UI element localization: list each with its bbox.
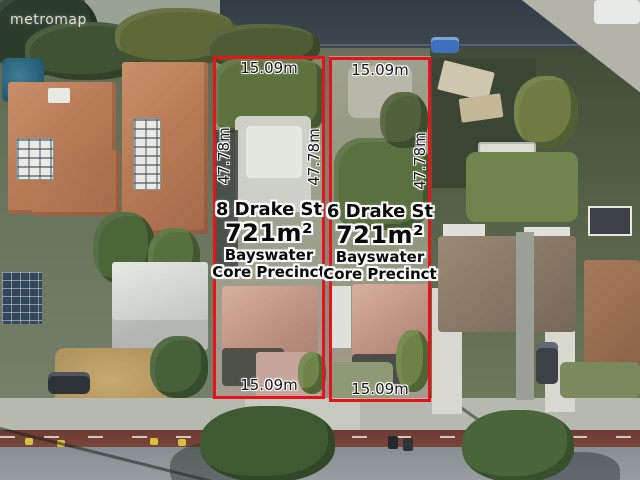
roof-vent-white xyxy=(48,88,70,103)
bin-1 xyxy=(388,436,398,449)
solar-panels-2 xyxy=(133,118,161,190)
bin-2 xyxy=(403,438,413,451)
lot6-frontage-top-label: 15.09m xyxy=(329,61,431,79)
car-gray-right xyxy=(536,342,558,384)
solar-dark-right xyxy=(588,206,632,236)
driveway-vertical-right xyxy=(516,232,534,400)
lot6-address: 6 Drake St xyxy=(327,201,433,222)
lot8-info: 8 Drake St 721m² Bayswater Core Precinct xyxy=(210,199,328,281)
solar-panels-1 xyxy=(16,138,54,180)
house-roof-edge-right xyxy=(584,260,640,366)
aerial-map: 15.09m 47.78m 47.78m 8 Drake St 721m² Ba… xyxy=(0,0,640,480)
road-marker-yellow-1 xyxy=(25,438,33,445)
lot8-area: 721m² xyxy=(225,220,313,247)
lot8-address: 8 Drake St xyxy=(216,199,322,220)
car-blue xyxy=(431,37,459,53)
car-dark xyxy=(48,372,90,394)
house-roof-white xyxy=(112,262,208,350)
road-marker-yellow-3 xyxy=(150,438,158,445)
solar-panels-blue xyxy=(2,272,42,324)
lot8-depth-right-label: 47.78m xyxy=(305,117,323,197)
lot8-depth-left-label: 47.78m xyxy=(215,116,233,196)
lot6-zone-line2: Core Precinct xyxy=(323,266,436,283)
lot8-zone-line1: Bayswater xyxy=(225,247,314,264)
lot8-zone-line2: Core Precinct xyxy=(212,264,325,281)
lawn-right xyxy=(466,152,578,222)
metromap-watermark: metromap xyxy=(10,12,87,28)
house-roof-brown-right xyxy=(438,236,576,332)
lot8-frontage-top-label: 15.09m xyxy=(213,59,325,77)
lot6-depth-right-label: 47.78m xyxy=(411,121,429,201)
road-marker-yellow-4 xyxy=(178,439,186,446)
tree-olive-right xyxy=(514,76,578,148)
lot6-zone-line1: Bayswater xyxy=(336,249,425,266)
tree-over-road-2 xyxy=(462,410,574,480)
truck-white xyxy=(594,0,640,24)
lot6-area: 721m² xyxy=(336,222,424,249)
lot6-frontage-bottom-label: 15.09m xyxy=(329,380,431,398)
shrub-left-bottom xyxy=(150,336,208,398)
lot8-frontage-bottom-label: 15.09m xyxy=(213,376,325,394)
lawn-right-bottom xyxy=(560,362,640,398)
lot6-info: 6 Drake St 721m² Bayswater Core Precinct xyxy=(324,201,436,283)
tree-over-road-1 xyxy=(200,406,335,480)
